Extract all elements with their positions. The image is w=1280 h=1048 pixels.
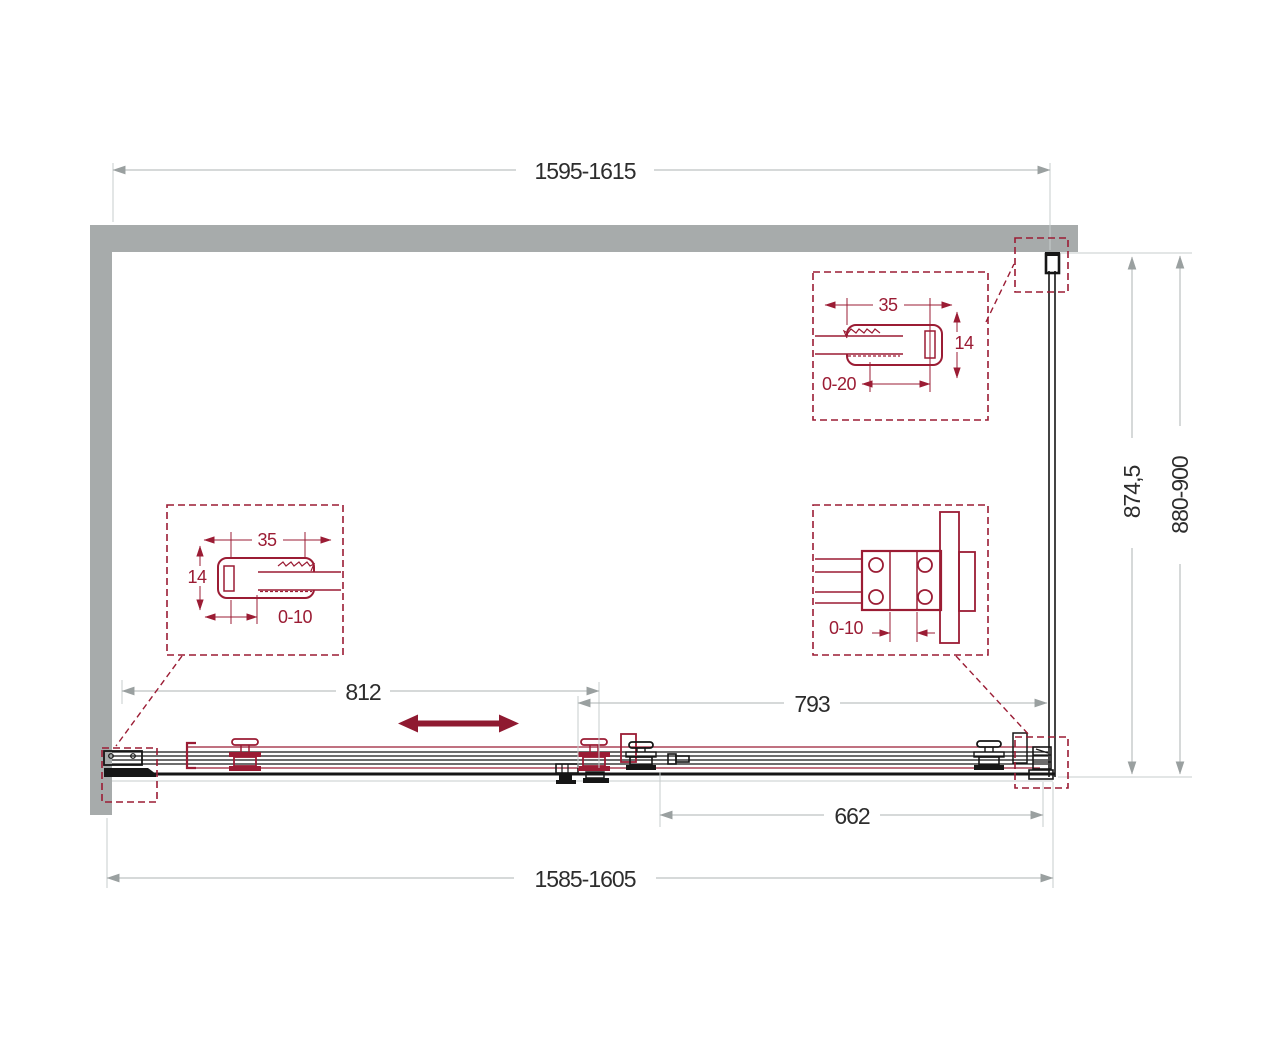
- detail-top-right-width-label: 35: [878, 295, 898, 315]
- roller-red-left: [229, 739, 261, 771]
- detail-wall-bracket: 0-10: [813, 505, 988, 655]
- screw: [869, 558, 883, 572]
- detail-bracket-range-label: 0-10: [829, 618, 864, 638]
- top-wall: [90, 225, 1078, 252]
- dim-label-bottom-width: 1585-1605: [535, 866, 636, 892]
- leader-top-right: [986, 264, 1014, 322]
- roller-red-center: [578, 739, 610, 783]
- wall-profile-bar: [940, 512, 959, 643]
- dim-label-side-depth: 880-900: [1167, 456, 1193, 534]
- screw: [918, 558, 932, 572]
- detail-locators: [102, 238, 1068, 802]
- detail-left-height-label: 14: [187, 567, 207, 587]
- detail-top-right-profile: 35 14 0-20: [813, 272, 988, 420]
- detail-top-right-range-label: 0-20: [822, 374, 857, 394]
- wall-profile-cap: [1046, 254, 1059, 273]
- detail-left-profile: 35 14 0-10: [167, 505, 343, 655]
- drawing-canvas: 1595-1615 812 793 662 1585-1605 874,5: [0, 0, 1280, 1048]
- dim-bottom-width: 1585-1605: [107, 782, 1053, 892]
- screw: [918, 590, 932, 604]
- dim-label-door-panel: 793: [794, 691, 830, 717]
- screw: [869, 590, 883, 604]
- bottom-track: [104, 733, 1055, 784]
- clamp-teeth: [278, 562, 314, 571]
- dim-side-right: 874,5 880-900: [1058, 253, 1194, 777]
- dim-label-fixed-panel: 662: [834, 803, 870, 829]
- dim-door-opening: 812: [122, 677, 599, 768]
- leader-bottom-left: [116, 656, 182, 746]
- detail-left-width-label: 35: [257, 530, 277, 550]
- side-glass-panel: [1045, 254, 1060, 777]
- dim-label-top-width: 1595-1615: [535, 158, 636, 184]
- leader-bottom-right: [956, 656, 1030, 736]
- technical-drawing-page: 1595-1615 812 793 662 1585-1605 874,5: [0, 0, 1280, 1048]
- dim-label-door-opening: 812: [345, 679, 381, 705]
- detail-left-range-label: 0-10: [278, 607, 313, 627]
- detail-top-right-height-label: 14: [954, 333, 974, 353]
- left-wall: [90, 225, 112, 815]
- dim-label-side-glass: 874,5: [1119, 466, 1145, 519]
- slide-direction-arrow: [398, 715, 519, 733]
